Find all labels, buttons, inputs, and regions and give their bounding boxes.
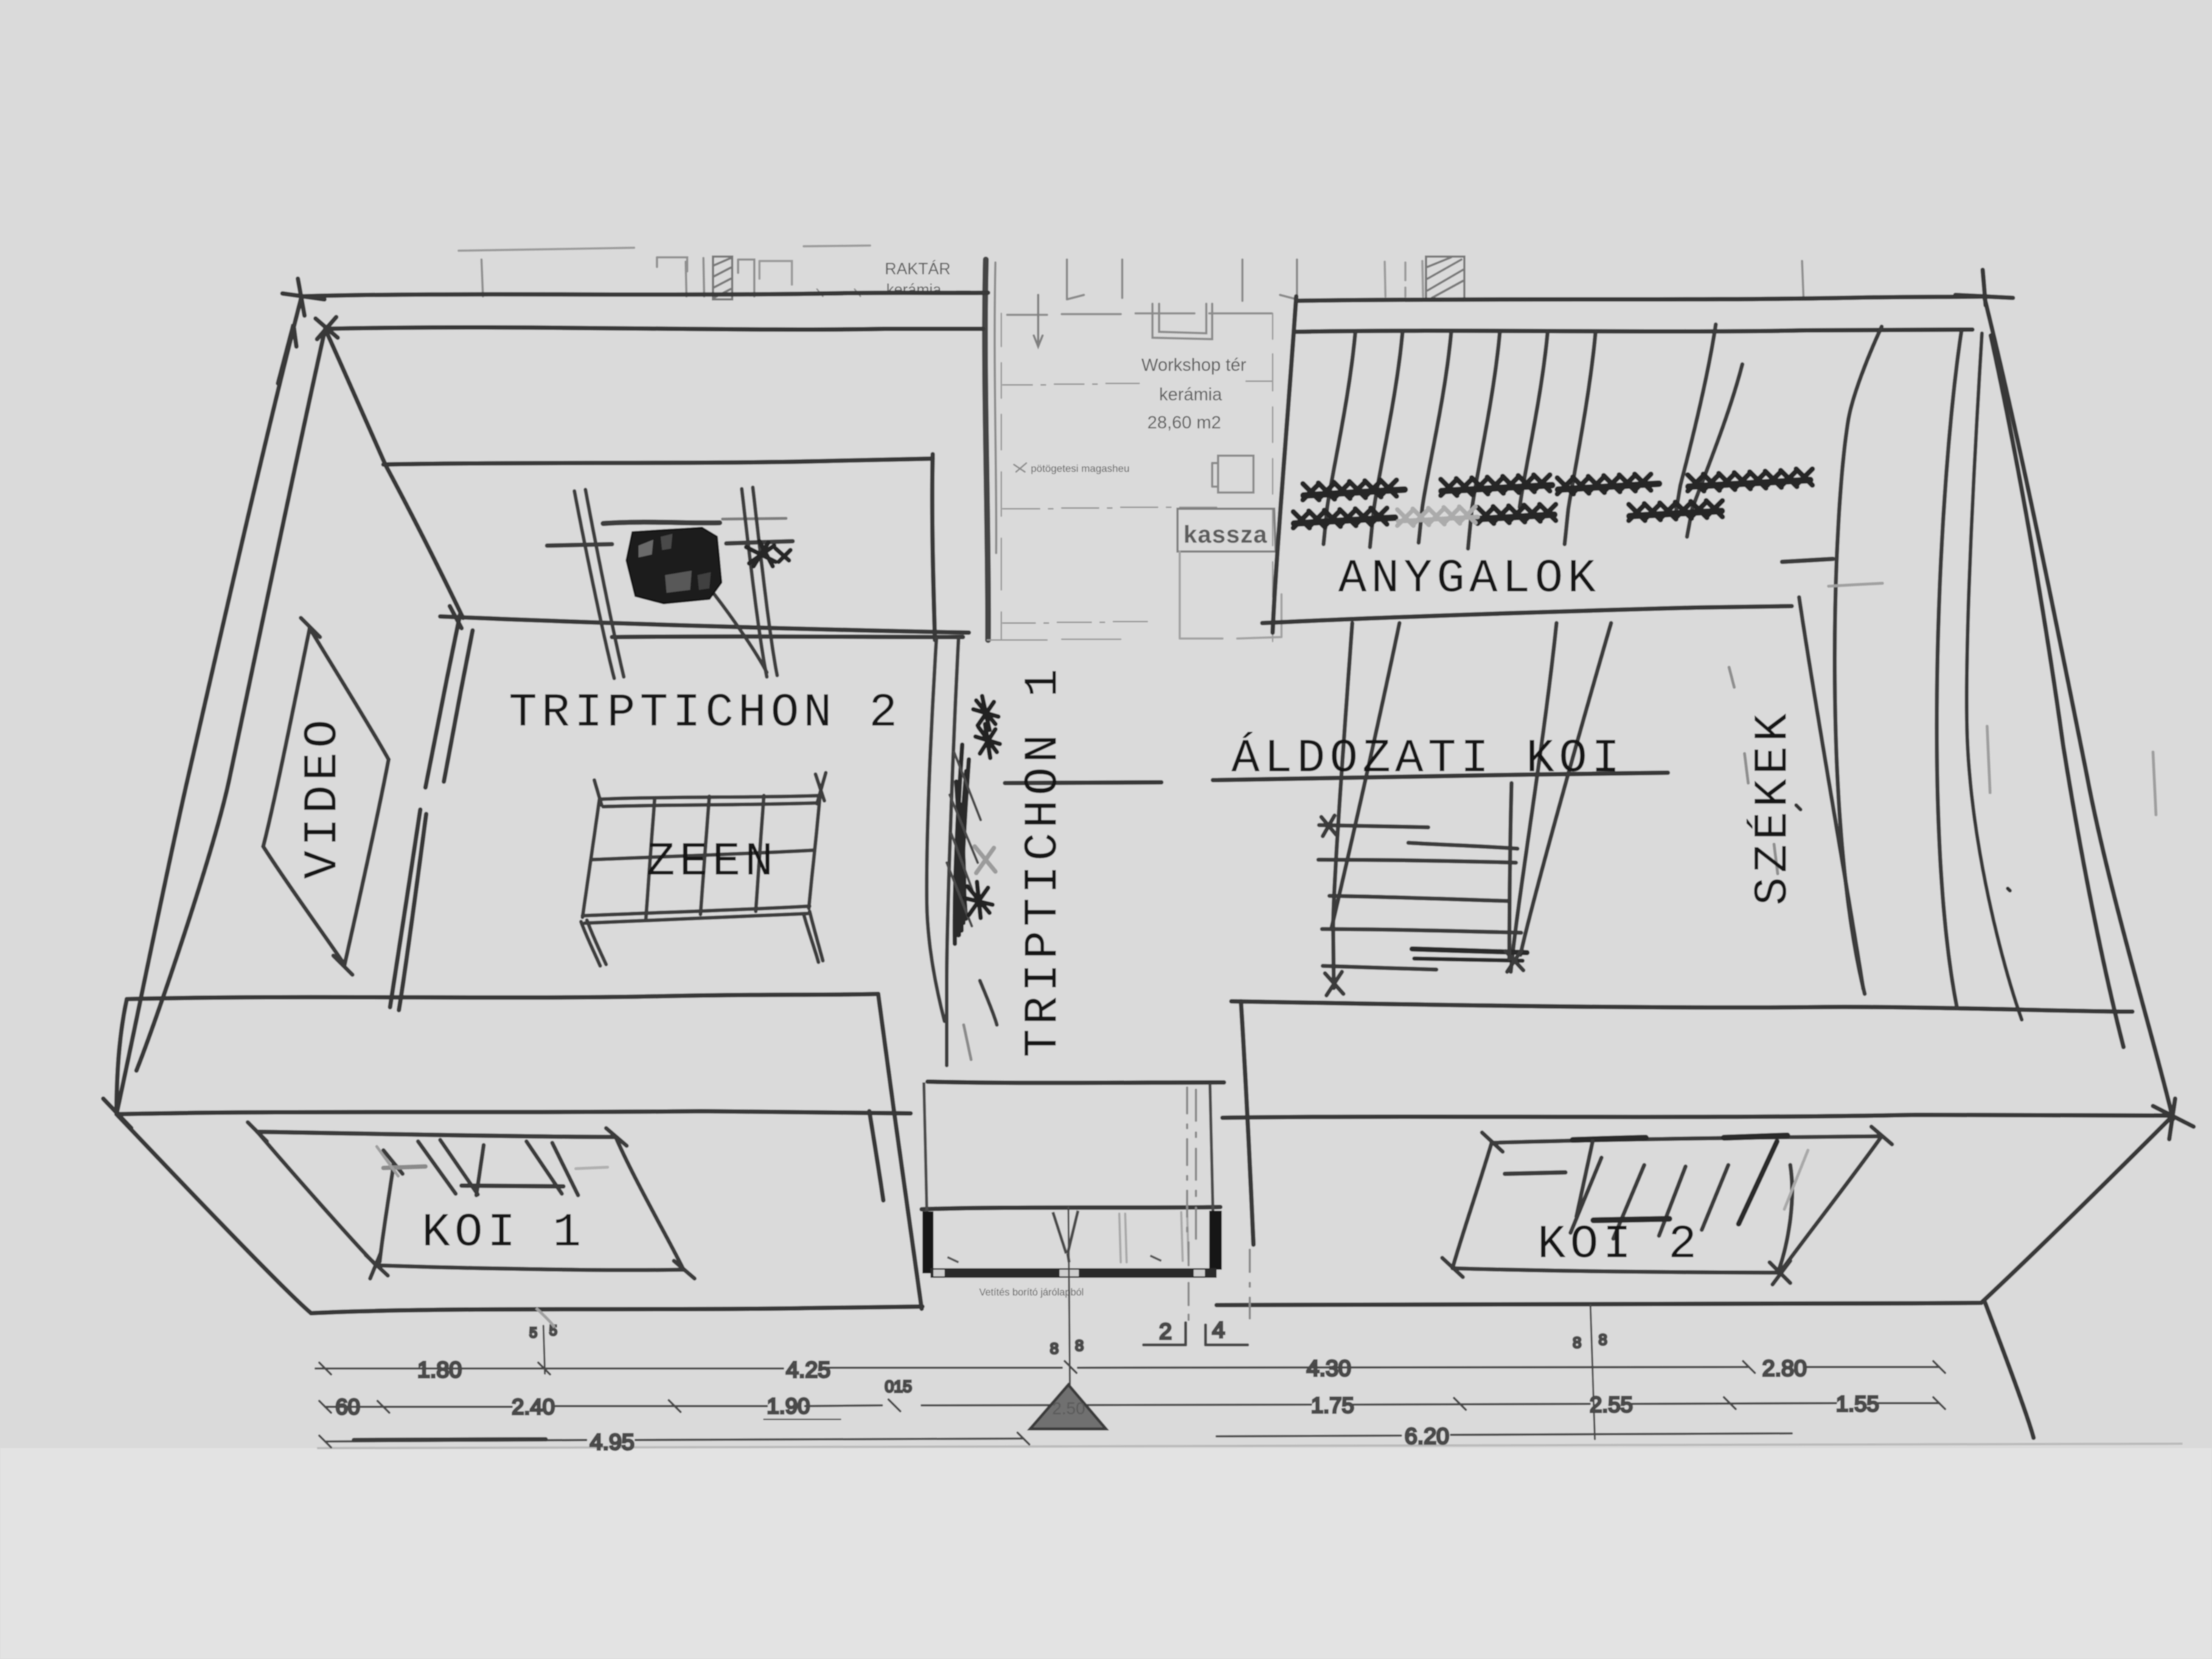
svg-text:5: 5 xyxy=(529,1326,538,1341)
svg-text:TRIPTICHON 1: TRIPTICHON 1 xyxy=(1018,664,1071,1057)
svg-text:28,60 m2: 28,60 m2 xyxy=(1147,413,1221,433)
svg-text:kassza: kassza xyxy=(1183,521,1267,548)
svg-text:RAKTÁR: RAKTÁR xyxy=(885,260,950,278)
svg-text:4.95: 4.95 xyxy=(590,1429,634,1455)
svg-text:Vetítés borító járólapból: Vetítés borító járólapból xyxy=(979,1287,1084,1298)
svg-text:8: 8 xyxy=(1075,1338,1084,1354)
svg-text:1.80: 1.80 xyxy=(417,1357,462,1382)
svg-text:kerámia: kerámia xyxy=(886,282,942,299)
svg-text:4.30: 4.30 xyxy=(1307,1355,1351,1381)
svg-text:VIDEO: VIDEO xyxy=(297,715,350,879)
svg-text:Workshop tér: Workshop tér xyxy=(1141,355,1246,375)
svg-text:2.40: 2.40 xyxy=(512,1395,554,1419)
svg-text:kerámia: kerámia xyxy=(1159,385,1222,405)
svg-text:6.20: 6.20 xyxy=(1405,1423,1449,1449)
svg-text:pötögetesi magasheu: pötögetesi magasheu xyxy=(1031,462,1130,474)
svg-text:4.25: 4.25 xyxy=(786,1357,830,1382)
svg-text:1.75: 1.75 xyxy=(1311,1394,1354,1418)
svg-text:ÁLDOZATI KOI: ÁLDOZATI KOI xyxy=(1231,731,1624,786)
svg-text:2: 2 xyxy=(1159,1318,1172,1344)
svg-text:ZEEN: ZEEN xyxy=(647,836,778,889)
svg-text:015: 015 xyxy=(885,1377,912,1396)
svg-text:SZÉKEK: SZÉKEK xyxy=(1746,709,1801,905)
svg-text:TRIPTICHON 2: TRIPTICHON 2 xyxy=(509,687,902,740)
svg-text:2.50: 2.50 xyxy=(1052,1399,1085,1418)
svg-text:2.55: 2.55 xyxy=(1590,1393,1632,1417)
svg-text:1.90: 1.90 xyxy=(767,1394,810,1419)
svg-text:2.80: 2.80 xyxy=(1762,1355,1806,1381)
svg-text:4: 4 xyxy=(1212,1317,1225,1343)
svg-text:1.55: 1.55 xyxy=(1836,1392,1879,1416)
svg-text:8: 8 xyxy=(1050,1340,1059,1357)
svg-text:60: 60 xyxy=(335,1395,360,1419)
svg-text:8: 8 xyxy=(1599,1332,1607,1349)
svg-text:8: 8 xyxy=(1573,1335,1582,1352)
svg-text:ANYGALOK: ANYGALOK xyxy=(1338,553,1600,606)
svg-text:KOI 1: KOI 1 xyxy=(422,1207,585,1260)
svg-text:KOI 2: KOI 2 xyxy=(1537,1219,1701,1272)
